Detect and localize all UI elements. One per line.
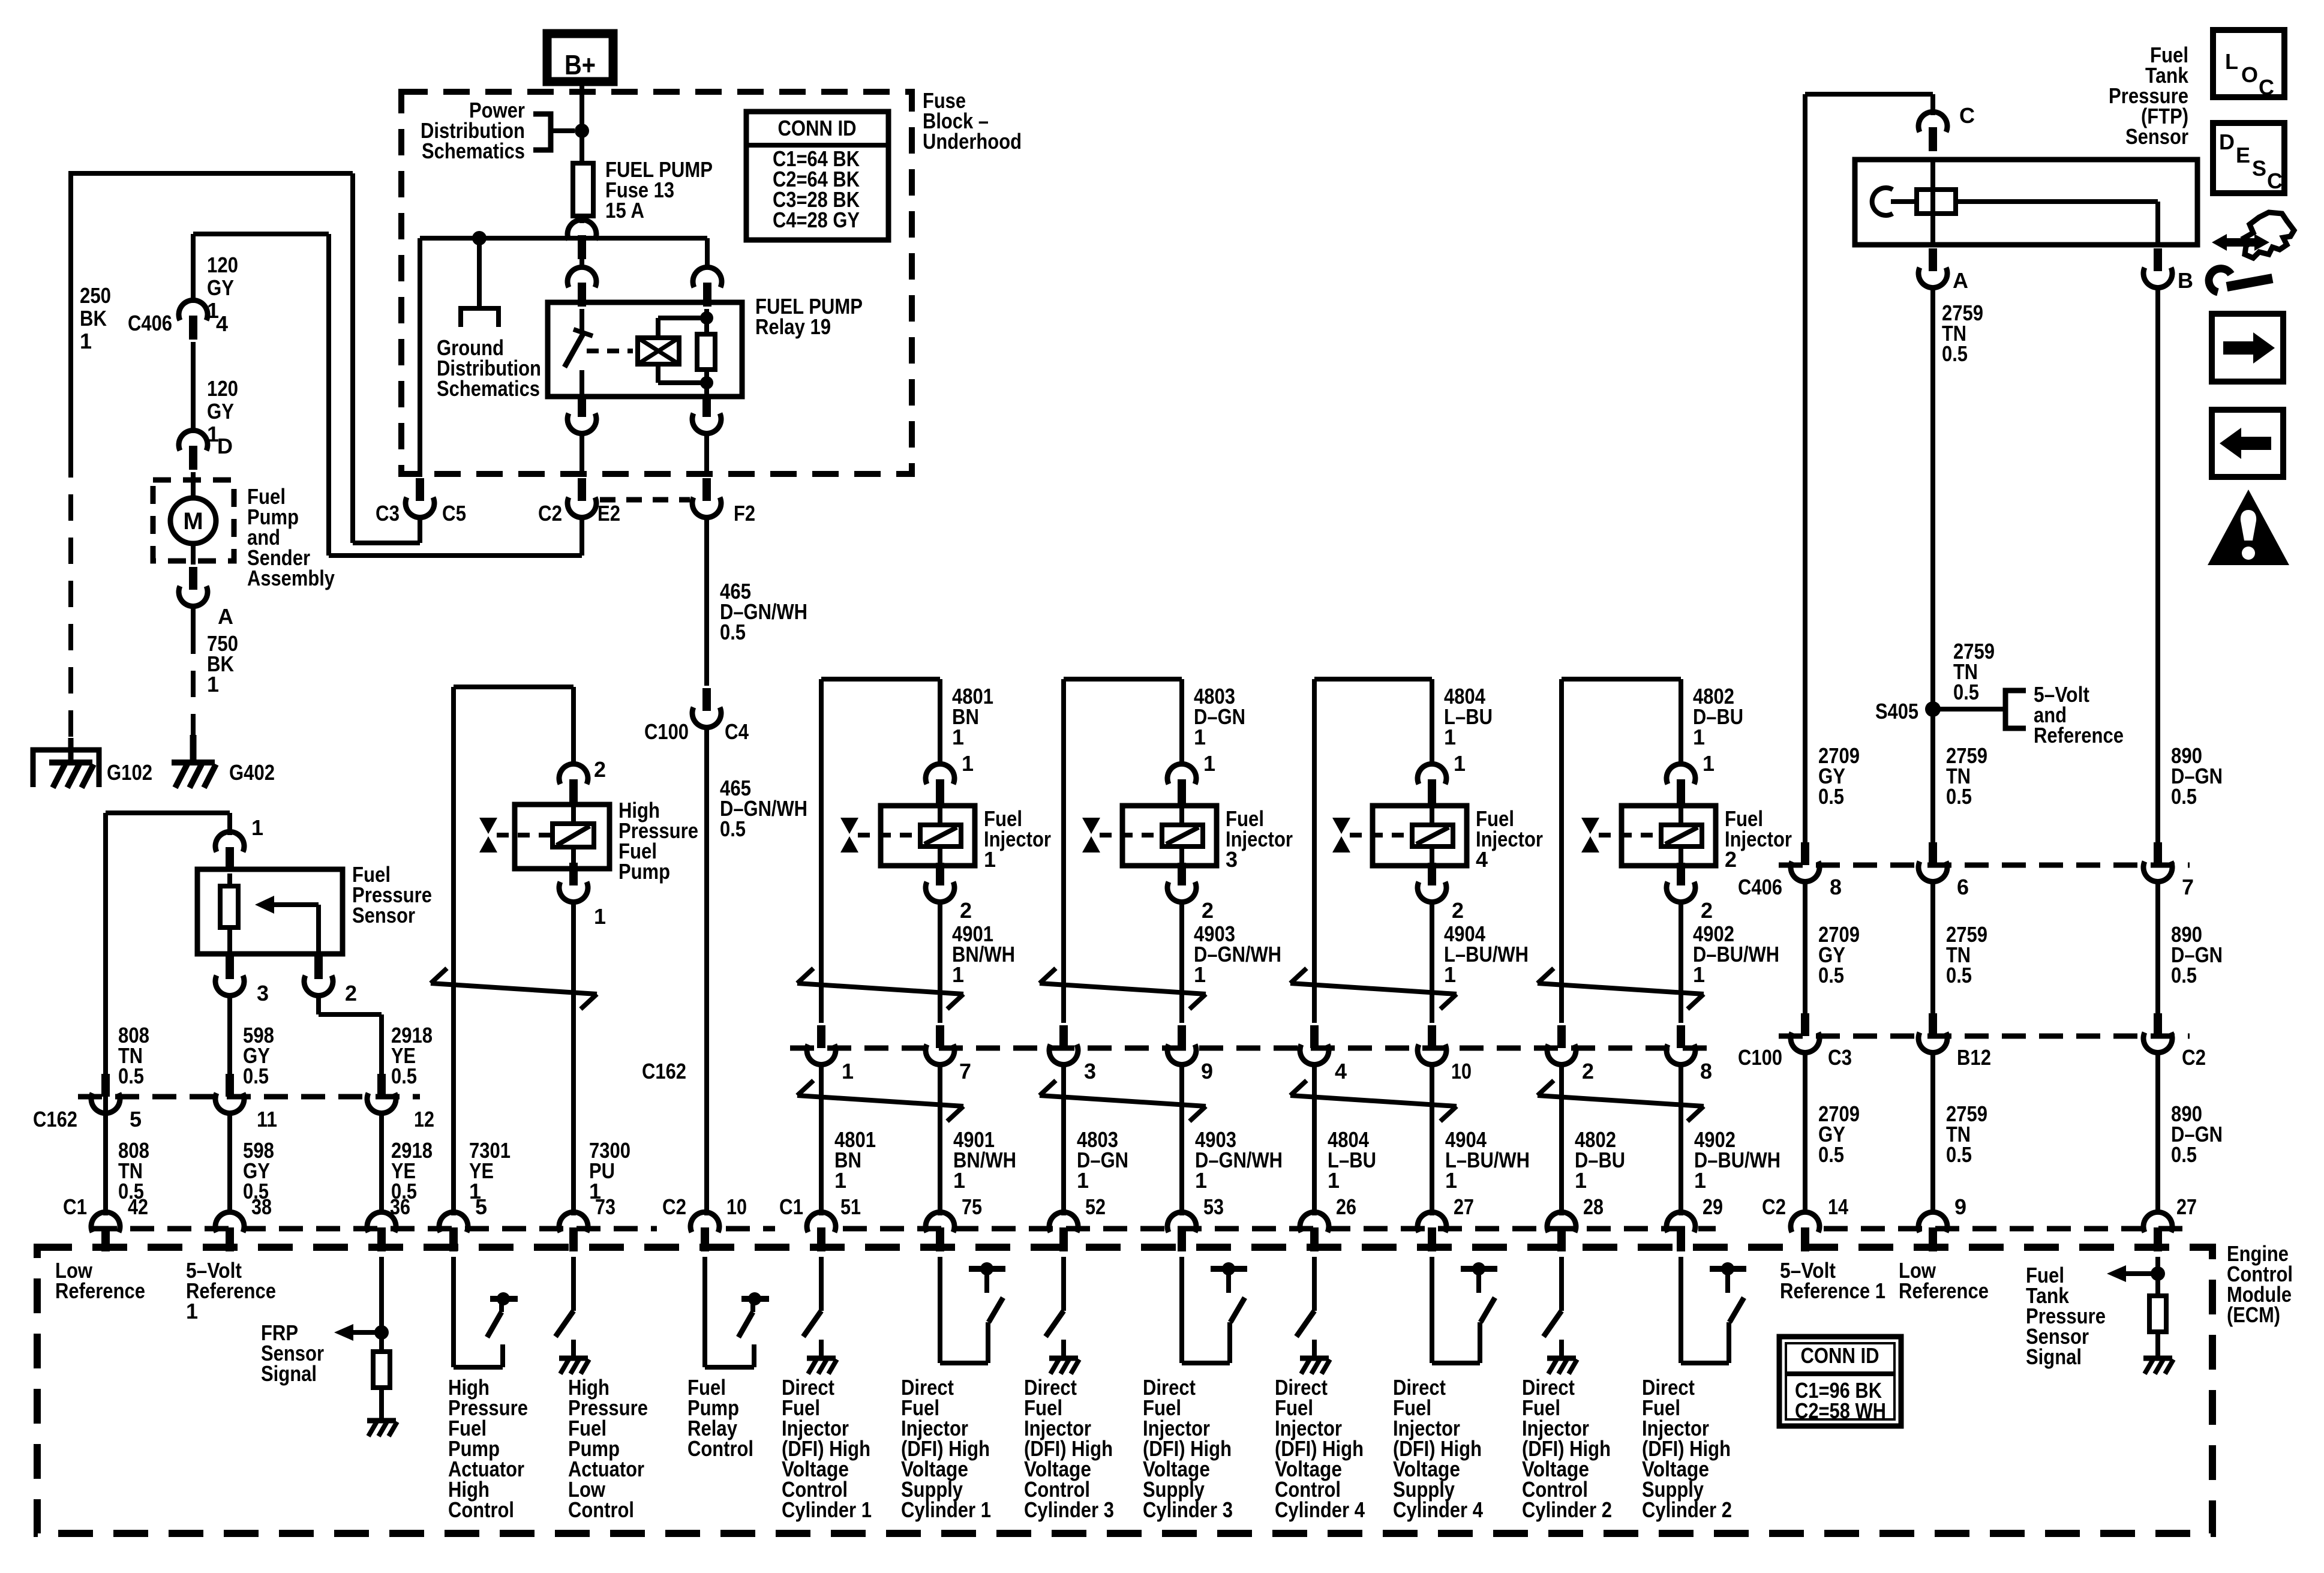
svg-text:0.5: 0.5 bbox=[118, 1064, 144, 1088]
svg-text:0.5: 0.5 bbox=[2171, 1142, 2197, 1167]
svg-text:2: 2 bbox=[1582, 1059, 1594, 1083]
svg-text:1: 1 bbox=[80, 329, 92, 353]
svg-text:C2: C2 bbox=[1762, 1194, 1786, 1219]
svg-text:1: 1 bbox=[834, 1168, 846, 1193]
svg-text:C2=58 WH: C2=58 WH bbox=[1795, 1398, 1886, 1423]
svg-text:C1: C1 bbox=[63, 1194, 87, 1219]
svg-text:CONN ID: CONN ID bbox=[778, 116, 857, 140]
svg-text:2: 2 bbox=[1452, 898, 1464, 923]
svg-text:1: 1 bbox=[1445, 1168, 1457, 1193]
svg-text:0.5: 0.5 bbox=[1942, 341, 1968, 366]
svg-text:8: 8 bbox=[1700, 1059, 1712, 1083]
svg-text:Reference: Reference bbox=[55, 1278, 145, 1303]
svg-text:Relay 19: Relay 19 bbox=[755, 314, 831, 339]
svg-text:C3: C3 bbox=[1828, 1045, 1852, 1070]
svg-text:Cylinder 4: Cylinder 4 bbox=[1393, 1497, 1483, 1522]
svg-text:0.5: 0.5 bbox=[1946, 1142, 1972, 1167]
svg-text:F2: F2 bbox=[734, 501, 755, 526]
svg-text:Control: Control bbox=[687, 1436, 753, 1461]
svg-text:6: 6 bbox=[1957, 875, 1969, 899]
svg-text:1: 1 bbox=[1693, 962, 1705, 987]
svg-text:A: A bbox=[218, 604, 233, 629]
svg-text:28: 28 bbox=[1583, 1194, 1604, 1219]
svg-text:C4=28 GY: C4=28 GY bbox=[773, 208, 860, 232]
svg-text:2: 2 bbox=[1701, 898, 1713, 923]
svg-text:1: 1 bbox=[962, 751, 974, 776]
svg-text:Underhood: Underhood bbox=[923, 129, 1022, 154]
svg-text:C1: C1 bbox=[779, 1194, 803, 1219]
svg-text:5: 5 bbox=[475, 1194, 487, 1219]
svg-text:D–BU/WH: D–BU/WH bbox=[1694, 1148, 1780, 1172]
svg-text:12: 12 bbox=[414, 1107, 434, 1131]
svg-text:Signal: Signal bbox=[2026, 1344, 2082, 1369]
svg-text:0.5: 0.5 bbox=[1818, 963, 1844, 987]
svg-text:D–GN/WH: D–GN/WH bbox=[1194, 942, 1281, 966]
svg-text:4: 4 bbox=[1335, 1059, 1347, 1083]
svg-text:1: 1 bbox=[1203, 751, 1215, 776]
svg-text:0.5: 0.5 bbox=[1818, 784, 1844, 809]
svg-text:1: 1 bbox=[1693, 725, 1705, 749]
svg-text:14: 14 bbox=[1828, 1194, 1848, 1219]
svg-text:D–GN/WH: D–GN/WH bbox=[1195, 1148, 1283, 1172]
svg-text:Schematics: Schematics bbox=[437, 376, 540, 401]
svg-text:Cylinder 2: Cylinder 2 bbox=[1642, 1497, 1732, 1522]
svg-text:42: 42 bbox=[128, 1194, 148, 1219]
svg-text:15 A: 15 A bbox=[605, 198, 644, 223]
svg-text:Cylinder 3: Cylinder 3 bbox=[1143, 1497, 1233, 1522]
svg-text:C2: C2 bbox=[662, 1194, 686, 1219]
svg-text:(ECM): (ECM) bbox=[2227, 1302, 2280, 1327]
svg-text:C100: C100 bbox=[1738, 1045, 1782, 1070]
svg-text:Signal: Signal bbox=[261, 1361, 317, 1386]
svg-text:36: 36 bbox=[390, 1194, 410, 1219]
svg-text:0.5: 0.5 bbox=[720, 816, 746, 841]
svg-text:0.5: 0.5 bbox=[1946, 784, 1972, 809]
svg-text:GY: GY bbox=[207, 275, 234, 300]
svg-text:0.5: 0.5 bbox=[1946, 963, 1972, 987]
svg-text:M: M bbox=[183, 508, 203, 535]
svg-text:C: C bbox=[2259, 75, 2274, 100]
svg-text:C162: C162 bbox=[33, 1107, 77, 1131]
svg-text:250: 250 bbox=[80, 283, 111, 308]
svg-text:2: 2 bbox=[345, 981, 357, 1005]
svg-text:1: 1 bbox=[207, 672, 219, 697]
svg-text:51: 51 bbox=[840, 1194, 861, 1219]
svg-text:0.5: 0.5 bbox=[1818, 1142, 1844, 1167]
svg-text:1: 1 bbox=[953, 1168, 965, 1193]
svg-text:53: 53 bbox=[1203, 1194, 1224, 1219]
svg-text:3: 3 bbox=[257, 981, 269, 1005]
svg-text:7: 7 bbox=[2182, 875, 2194, 899]
svg-text:0.5: 0.5 bbox=[720, 620, 746, 644]
svg-text:G102: G102 bbox=[107, 760, 152, 785]
svg-text:C4: C4 bbox=[725, 719, 749, 744]
svg-text:L–BU/WH: L–BU/WH bbox=[1445, 1148, 1530, 1172]
svg-text:1: 1 bbox=[1077, 1168, 1089, 1193]
svg-text:C2: C2 bbox=[538, 501, 562, 526]
svg-text:E: E bbox=[2236, 143, 2250, 167]
svg-text:1: 1 bbox=[1444, 962, 1456, 987]
svg-text:C2: C2 bbox=[2182, 1045, 2206, 1070]
svg-text:11: 11 bbox=[257, 1107, 277, 1131]
svg-text:4: 4 bbox=[1476, 847, 1488, 872]
svg-text:120: 120 bbox=[207, 253, 238, 277]
svg-text:9: 9 bbox=[1201, 1059, 1213, 1083]
svg-text:S405: S405 bbox=[1875, 699, 1918, 724]
svg-text:Schematics: Schematics bbox=[422, 139, 525, 163]
svg-text:75: 75 bbox=[962, 1194, 982, 1219]
svg-text:E2: E2 bbox=[597, 501, 620, 526]
svg-text:Reference: Reference bbox=[186, 1278, 276, 1303]
svg-text:Cylinder 3: Cylinder 3 bbox=[1024, 1497, 1114, 1522]
svg-text:1: 1 bbox=[1454, 751, 1466, 776]
svg-text:1: 1 bbox=[1703, 751, 1715, 776]
svg-text:Cylinder 1: Cylinder 1 bbox=[901, 1497, 991, 1522]
svg-text:27: 27 bbox=[1454, 1194, 1474, 1219]
svg-text:BK: BK bbox=[80, 306, 107, 331]
svg-text:D: D bbox=[2219, 130, 2235, 154]
svg-text:1: 1 bbox=[207, 298, 219, 323]
svg-text:120: 120 bbox=[207, 376, 238, 401]
svg-text:1: 1 bbox=[1194, 962, 1206, 987]
svg-text:B: B bbox=[2178, 268, 2193, 293]
svg-text:1: 1 bbox=[1328, 1168, 1340, 1193]
svg-text:C5: C5 bbox=[442, 501, 466, 526]
svg-text:2: 2 bbox=[594, 757, 606, 782]
svg-text:27: 27 bbox=[2176, 1194, 2197, 1219]
svg-text:Control: Control bbox=[568, 1497, 634, 1522]
svg-text:S: S bbox=[2252, 156, 2266, 181]
svg-text:O: O bbox=[2241, 62, 2258, 87]
svg-text:C100: C100 bbox=[644, 719, 689, 744]
svg-text:Control: Control bbox=[448, 1497, 514, 1522]
svg-text:0.5: 0.5 bbox=[391, 1064, 417, 1088]
svg-text:26: 26 bbox=[1336, 1194, 1356, 1219]
svg-text:5: 5 bbox=[130, 1107, 142, 1131]
svg-text:A: A bbox=[1953, 268, 1968, 293]
svg-text:7: 7 bbox=[959, 1059, 971, 1083]
svg-text:1: 1 bbox=[186, 1299, 198, 1323]
svg-text:3: 3 bbox=[1084, 1059, 1096, 1083]
svg-text:2: 2 bbox=[1202, 898, 1214, 923]
svg-text:2: 2 bbox=[1725, 847, 1737, 872]
svg-text:10: 10 bbox=[1451, 1059, 1472, 1083]
svg-text:1: 1 bbox=[1194, 725, 1206, 749]
svg-text:1: 1 bbox=[952, 962, 964, 987]
svg-text:G402: G402 bbox=[229, 760, 275, 785]
svg-text:C406: C406 bbox=[128, 311, 172, 335]
svg-text:Cylinder 1: Cylinder 1 bbox=[782, 1497, 872, 1522]
svg-text:0.5: 0.5 bbox=[2171, 784, 2197, 809]
svg-text:0.5: 0.5 bbox=[2171, 963, 2197, 987]
svg-text:Sensor: Sensor bbox=[2125, 124, 2188, 149]
svg-text:Reference: Reference bbox=[1899, 1278, 1989, 1303]
svg-text:8: 8 bbox=[1830, 875, 1842, 899]
svg-text:1: 1 bbox=[984, 847, 996, 872]
svg-text:Reference 1: Reference 1 bbox=[1780, 1278, 1885, 1303]
svg-text:1: 1 bbox=[1444, 725, 1456, 749]
svg-text:Cylinder 2: Cylinder 2 bbox=[1522, 1497, 1612, 1522]
svg-text:L: L bbox=[2225, 49, 2238, 74]
svg-text:Cylinder 4: Cylinder 4 bbox=[1275, 1497, 1365, 1522]
svg-text:1: 1 bbox=[1694, 1168, 1706, 1193]
svg-text:0.5: 0.5 bbox=[1953, 680, 1979, 704]
svg-text:C: C bbox=[2267, 169, 2283, 193]
svg-text:C162: C162 bbox=[642, 1059, 686, 1083]
svg-text:Pump: Pump bbox=[618, 859, 670, 884]
svg-text:38: 38 bbox=[251, 1194, 272, 1219]
svg-text:9: 9 bbox=[1954, 1194, 1966, 1219]
svg-text:Reference: Reference bbox=[2034, 723, 2124, 748]
svg-text:1: 1 bbox=[251, 815, 263, 840]
svg-text:1: 1 bbox=[1575, 1168, 1587, 1193]
svg-text:10: 10 bbox=[726, 1194, 747, 1219]
svg-text:C: C bbox=[1959, 103, 1975, 128]
svg-text:Sensor: Sensor bbox=[352, 903, 415, 927]
svg-text:D–BU/WH: D–BU/WH bbox=[1693, 942, 1779, 966]
svg-text:2: 2 bbox=[960, 898, 972, 923]
svg-text:B12: B12 bbox=[1957, 1045, 1991, 1070]
svg-text:Assembly: Assembly bbox=[247, 566, 335, 590]
svg-text:52: 52 bbox=[1085, 1194, 1106, 1219]
svg-text:GY: GY bbox=[207, 399, 234, 424]
svg-text:73: 73 bbox=[595, 1194, 615, 1219]
svg-text:C406: C406 bbox=[1738, 875, 1782, 899]
svg-text:D: D bbox=[217, 434, 233, 458]
svg-text:1: 1 bbox=[842, 1059, 854, 1083]
svg-text:3: 3 bbox=[1226, 847, 1238, 872]
svg-text:0.5: 0.5 bbox=[243, 1064, 269, 1088]
svg-text:L–BU/WH: L–BU/WH bbox=[1444, 942, 1529, 966]
svg-text:1: 1 bbox=[1195, 1168, 1207, 1193]
svg-text:1: 1 bbox=[952, 725, 964, 749]
svg-text:1: 1 bbox=[594, 904, 606, 929]
svg-text:29: 29 bbox=[1703, 1194, 1723, 1219]
svg-text:B+: B+ bbox=[565, 49, 596, 80]
svg-text:C3: C3 bbox=[376, 501, 400, 526]
svg-text:CONN ID: CONN ID bbox=[1801, 1343, 1879, 1368]
